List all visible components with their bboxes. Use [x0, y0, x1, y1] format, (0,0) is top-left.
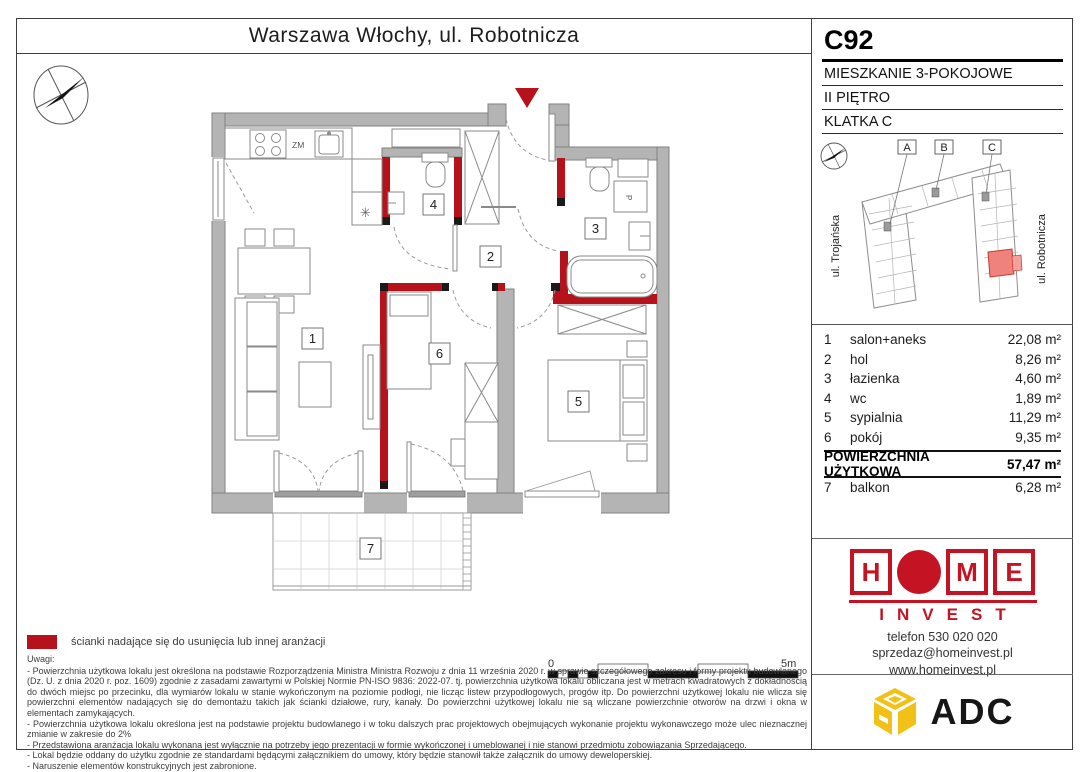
adc-cube-icon	[871, 686, 919, 738]
room-7-tag: 7	[367, 541, 374, 556]
room-6-tag: 6	[436, 346, 443, 361]
unit-type: MIESZKANIE 3-POKOJOWE	[822, 62, 1063, 86]
total-label: POWIERZCHNIA UŻYTKOWA	[824, 449, 1007, 479]
table-row: 5 sypialnia 11,29 m²	[824, 408, 1061, 428]
logo-letter-o-icon	[897, 550, 941, 594]
row-name: sypialnia	[850, 410, 1009, 425]
kitchen-zm-label: ZM	[292, 140, 304, 150]
table-row: 1 salon+aneks 22,08 m²	[824, 330, 1061, 350]
unit-floor: II PIĘTRO	[822, 86, 1063, 110]
floor-plan: ZM ✳ P	[187, 81, 807, 626]
legend-text: ścianki nadające się do usunięcia lub in…	[71, 636, 325, 648]
room-table: 1 salon+aneks 22,08 m² 2 hol 8,26 m² 3 ł…	[812, 325, 1073, 498]
table-row: 4 wc 1,89 m²	[824, 389, 1061, 409]
info-panel: C92 MIESZKANIE 3-POKOJOWE II PIĘTRO KLAT…	[811, 19, 1073, 749]
room5-furniture	[548, 305, 647, 461]
logo-letter-m: M	[946, 549, 988, 595]
notes-heading: Uwagi:	[27, 654, 807, 665]
total-area-row: POWIERZCHNIA UŻYTKOWA 57,47 m²	[824, 450, 1061, 478]
highlighted-unit-balcony	[1012, 255, 1022, 271]
note-item: - Naruszenie elementów konstrukcyjnych j…	[27, 761, 807, 772]
room6-furniture	[387, 292, 498, 479]
note-item: - Lokal będzie oddany do użytku zgodnie …	[27, 750, 807, 761]
phone-text: telefon 530 020 020	[812, 629, 1073, 645]
notes: Uwagi: - Powierzchnia użytkowa lokalu je…	[27, 654, 807, 772]
row-num: 6	[824, 430, 850, 445]
row-area: 11,29 m²	[1009, 410, 1061, 425]
staircase-a-label: A	[903, 142, 911, 154]
row-name: hol	[850, 352, 1015, 367]
bathroom-fixtures	[567, 158, 657, 297]
room-2-tag: 2	[487, 249, 494, 264]
compass-icon	[31, 62, 95, 130]
row-area: 1,89 m²	[1015, 391, 1061, 406]
entrance-marker-icon	[515, 88, 539, 108]
removable-wall-swatch	[27, 635, 57, 649]
row-area: 22,08 m²	[1008, 332, 1061, 347]
balcony-row: 7 balkon 6,28 m²	[824, 478, 1061, 498]
adc-logo: ADC	[812, 674, 1073, 749]
logo-letter-h: H	[850, 549, 892, 595]
note-item: - Przedstawiona aranżacja lokalu wykonan…	[27, 740, 807, 751]
unit-staircase: KLATKA C	[822, 110, 1063, 134]
street-left-label: ul. Trojańska	[830, 214, 842, 277]
row-name: pokój	[850, 430, 1015, 445]
table-row: 2 hol 8,26 m²	[824, 350, 1061, 370]
row-num: 4	[824, 391, 850, 406]
plan-sheet: Warszawa Włochy, ul. Robotnicza	[16, 18, 1073, 750]
row-area: 4,60 m²	[1015, 371, 1061, 386]
developer-logo: H M E INVEST telefon 530 020 020 sprzeda…	[812, 538, 1073, 674]
row-area: 6,28 m²	[1015, 480, 1061, 495]
room-5-tag: 5	[575, 394, 582, 409]
table-row: 3 łazienka 4,60 m²	[824, 369, 1061, 389]
plan-area: ZM ✳ P	[17, 54, 811, 749]
table-row: 6 pokój 9,35 m²	[824, 428, 1061, 448]
room-4-tag: 4	[430, 197, 437, 212]
street-right-label: ul. Robotnicza	[1036, 213, 1048, 284]
building-outline	[862, 164, 1018, 308]
site-compass-icon	[821, 143, 847, 169]
logo-rule	[849, 600, 1037, 603]
staircase-b-label: B	[940, 142, 947, 154]
home-invest-logo: H M E	[812, 549, 1073, 595]
page-title: Warszawa Włochy, ul. Robotnicza	[17, 19, 811, 54]
row-name: salon+aneks	[850, 332, 1008, 347]
room-1-tag: 1	[309, 331, 316, 346]
washer-label: P	[624, 195, 633, 200]
row-num: 3	[824, 371, 850, 386]
note-item: - Powierzchnia użytkowa lokalu jest okre…	[27, 666, 807, 719]
site-map: A B C ul. Trojańska ul. Robotnicza	[812, 134, 1073, 325]
logo-invest-text: INVEST	[812, 605, 1073, 625]
staircase-c-label: C	[988, 142, 996, 154]
room-3-tag: 3	[592, 221, 599, 236]
row-num: 2	[824, 352, 850, 367]
row-num: 5	[824, 410, 850, 425]
total-area: 57,47 m²	[1007, 457, 1061, 472]
unit-code: C92	[812, 19, 1073, 59]
row-num: 7	[824, 480, 850, 495]
highlighted-unit	[988, 249, 1014, 277]
logo-letter-e: E	[993, 549, 1035, 595]
row-num: 1	[824, 332, 850, 347]
note-item: - Powierzchnia użytkowa lokalu określona…	[27, 719, 807, 740]
window-swing	[526, 471, 595, 491]
adc-name: ADC	[931, 691, 1015, 733]
row-area: 9,35 m²	[1015, 430, 1061, 445]
row-name: wc	[850, 391, 1015, 406]
shaft-wardrobe	[465, 131, 499, 224]
fridge-icon: ✳	[360, 205, 371, 220]
legend: ścianki nadające się do usunięcia lub in…	[27, 635, 325, 649]
email-text: sprzedaz@homeinvest.pl	[812, 645, 1073, 661]
row-name: łazienka	[850, 371, 1015, 386]
row-name: balkon	[850, 480, 1015, 495]
row-area: 8,26 m²	[1015, 352, 1061, 367]
